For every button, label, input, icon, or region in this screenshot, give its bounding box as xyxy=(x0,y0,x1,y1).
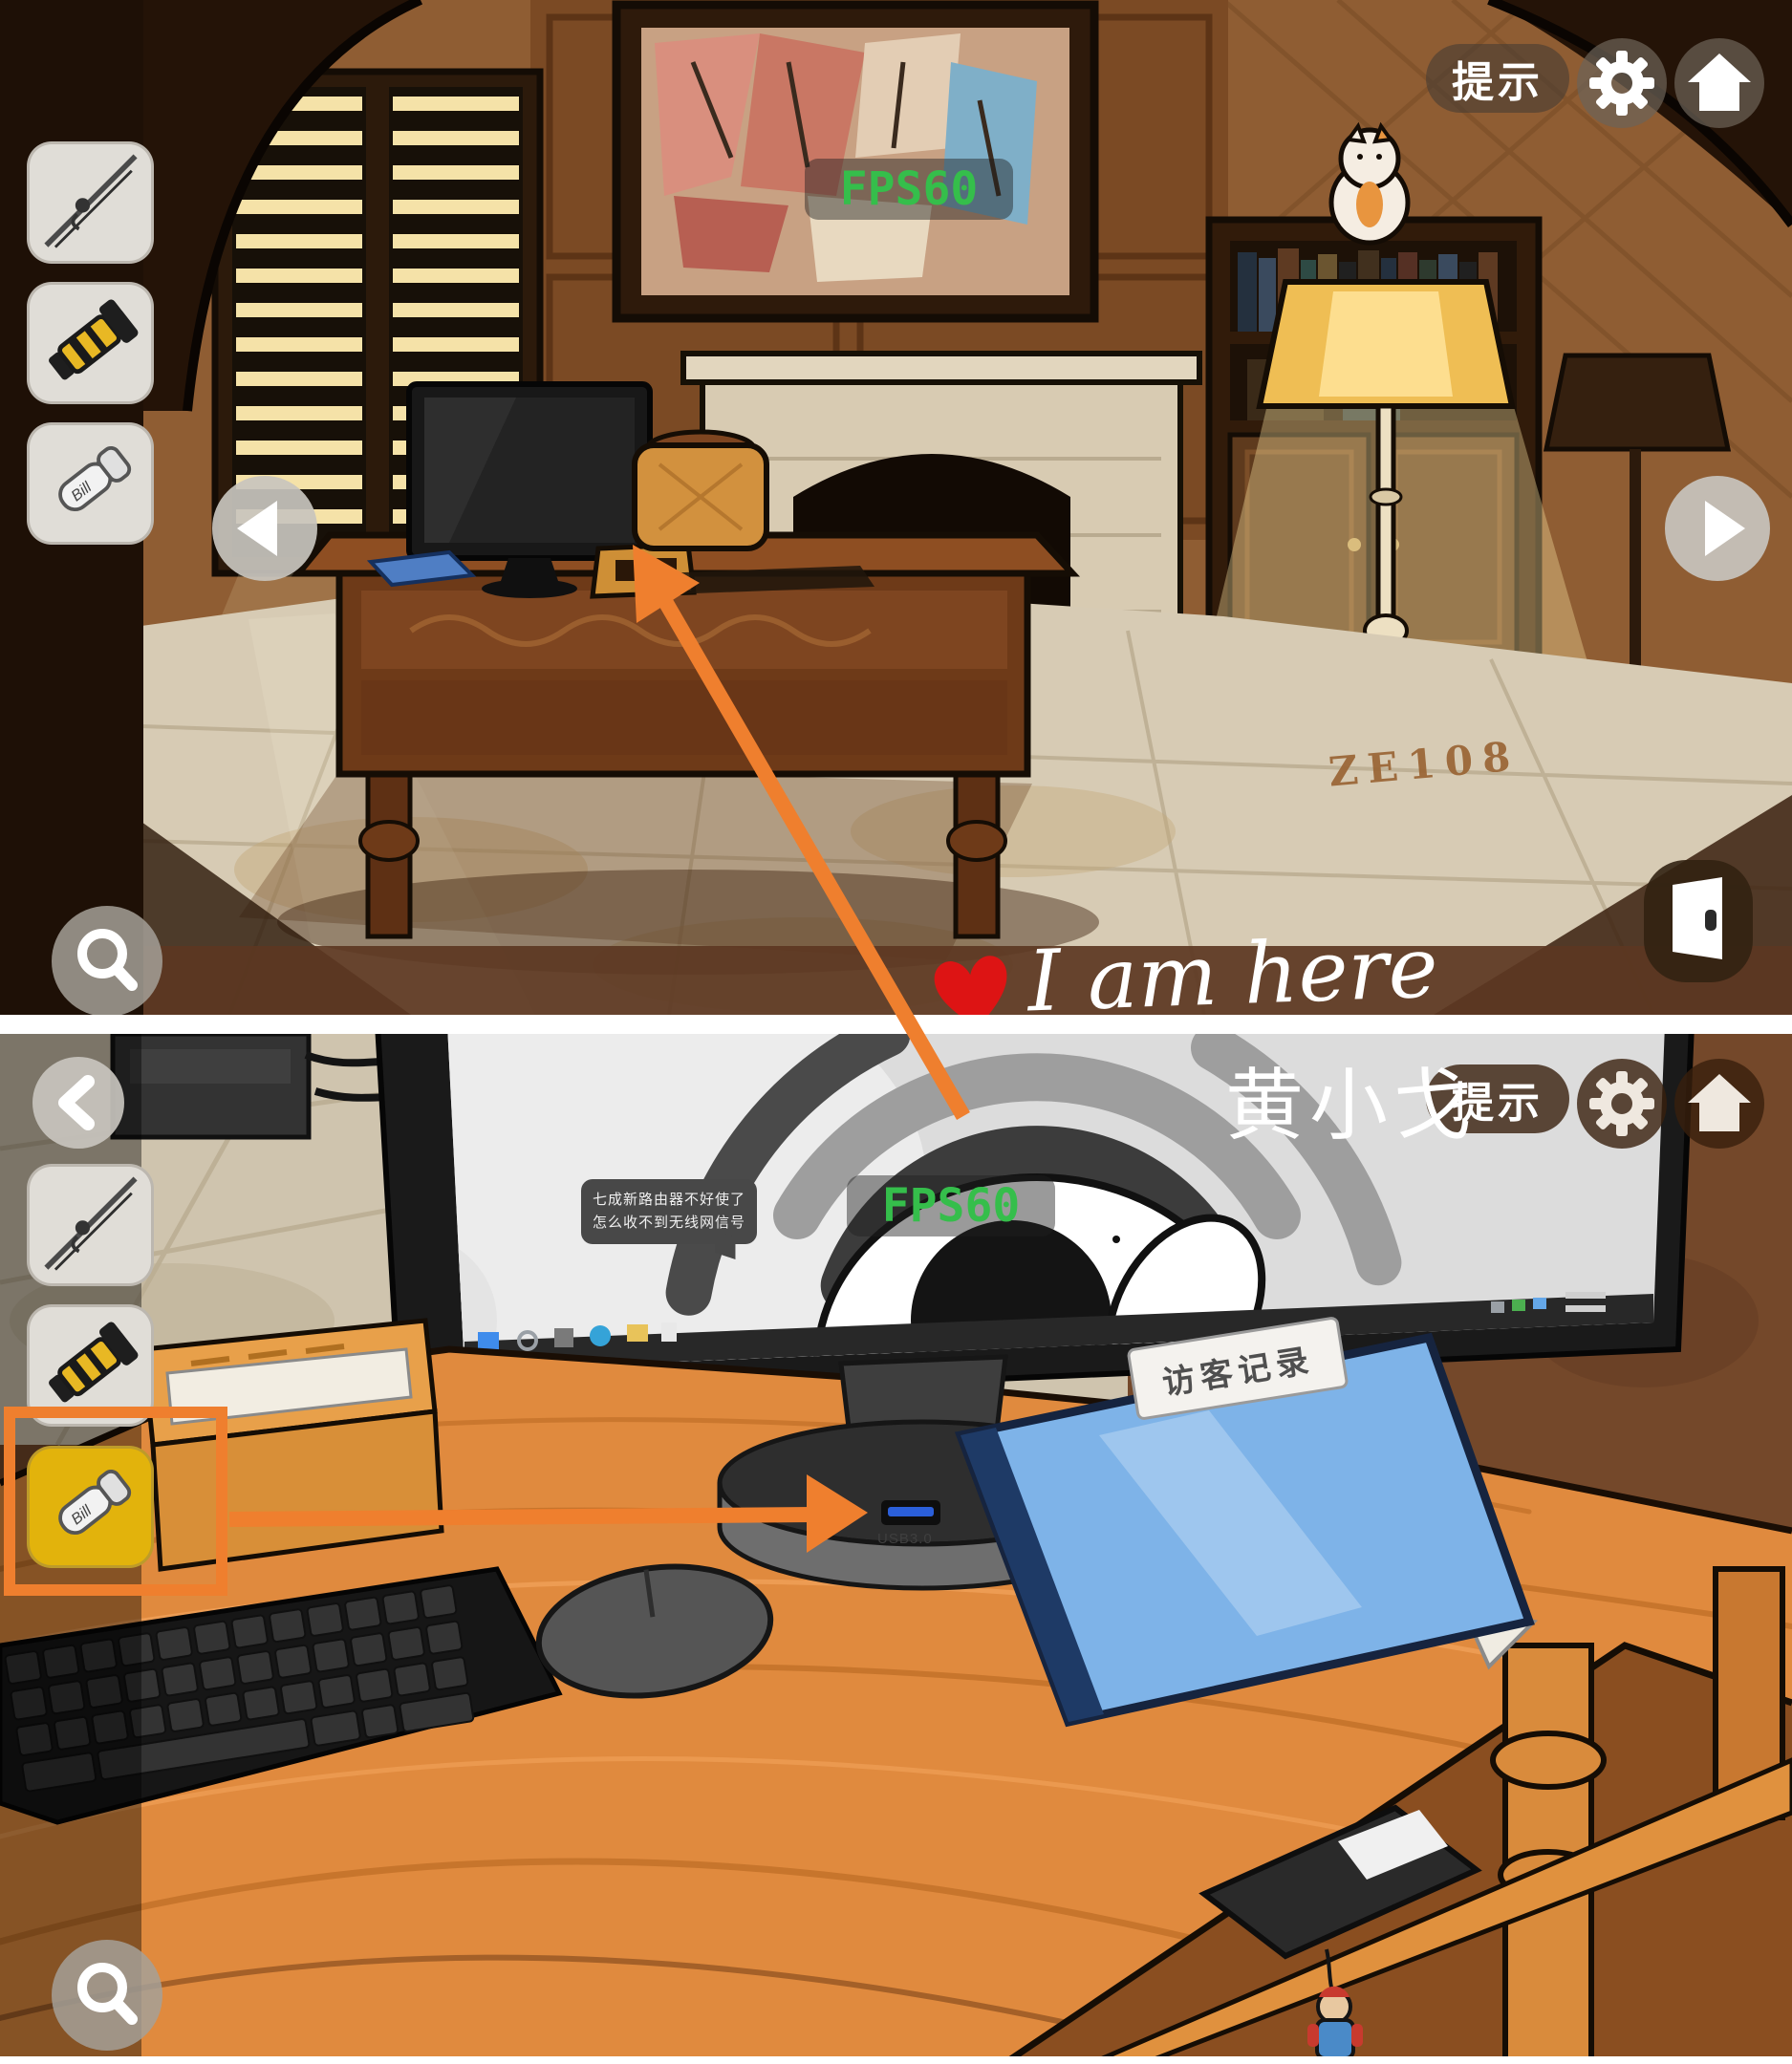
hint-button-label: 提示 xyxy=(1452,48,1544,109)
magnifier-icon xyxy=(52,1940,162,2051)
flashlight-icon xyxy=(33,1310,148,1421)
home-button[interactable] xyxy=(1674,1059,1764,1149)
clock-line-2 xyxy=(1565,1305,1606,1312)
desk-chair[interactable] xyxy=(635,432,766,548)
usb-port-label: USB3.0 xyxy=(877,1531,933,1547)
inventory-slot-flashlight[interactable] xyxy=(27,282,154,404)
nav-arrow-left-icon xyxy=(212,476,317,581)
search-scene-button[interactable] xyxy=(52,1940,162,2051)
fps-value: FPS60 xyxy=(882,1179,1021,1233)
search-scene-button[interactable] xyxy=(52,906,162,1015)
gear-icon xyxy=(1577,1059,1667,1149)
flashlight-icon xyxy=(33,288,148,398)
exit-door-button[interactable] xyxy=(1644,860,1753,982)
speech-bubble: 七成新路由器不好使了 怎么收不到无线网信号 xyxy=(581,1179,757,1244)
fishing-rod-icon xyxy=(33,1170,148,1280)
heart-icon xyxy=(929,948,1017,1015)
inventory-slot-usb-drive-selected[interactable]: Bill xyxy=(27,1446,154,1568)
game-screenshot-collage: 提示 xyxy=(0,0,1792,2064)
panel-divider xyxy=(0,1015,1792,1034)
inventory-slot-flashlight[interactable] xyxy=(27,1304,154,1427)
home-icon xyxy=(1674,38,1764,128)
taskview-icon xyxy=(554,1328,573,1347)
nav-right-button[interactable] xyxy=(1665,476,1770,581)
bottom-screenshot-desk-scene: 七成新路由器不好使了 怎么收不到无线网信号 FPS60 USB3.0 访客记录 … xyxy=(0,1034,1792,2064)
door-exit-icon xyxy=(1644,860,1753,982)
fishing-rod-icon xyxy=(33,147,148,258)
tray-icon-1 xyxy=(1491,1301,1504,1313)
usb-drive-icon: Bill xyxy=(33,1451,148,1562)
inventory-slot-fishing-rod[interactable] xyxy=(27,141,154,264)
nav-left-button[interactable] xyxy=(212,476,317,581)
usb-port[interactable] xyxy=(881,1500,940,1525)
home-icon xyxy=(1674,1059,1764,1149)
settings-button[interactable] xyxy=(1577,1059,1667,1149)
gear-icon xyxy=(1577,38,1667,128)
home-button[interactable] xyxy=(1674,38,1764,128)
speech-line-1: 七成新路由器不好使了 xyxy=(593,1189,745,1212)
settings-button[interactable] xyxy=(1577,38,1667,128)
here-annotation-text: I am here xyxy=(1026,918,1439,1015)
edge-icon xyxy=(590,1325,611,1346)
hint-button[interactable]: 提示 xyxy=(1426,44,1569,113)
explorer-icon xyxy=(627,1324,648,1342)
magnifier-icon xyxy=(52,906,162,1015)
inventory-slot-fishing-rod[interactable] xyxy=(27,1164,154,1286)
back-button[interactable] xyxy=(32,1057,124,1149)
fps-value: FPS60 xyxy=(840,162,979,216)
fps-overlay-top: FPS60 xyxy=(805,159,1013,220)
fps-overlay-bottom: FPS60 xyxy=(847,1175,1055,1236)
letter-holder[interactable] xyxy=(143,1321,442,1569)
bottom-edge-strip xyxy=(0,2056,1792,2064)
tray-icon-3 xyxy=(1533,1298,1546,1309)
back-chevron-icon xyxy=(32,1057,124,1149)
tray-icon-2 xyxy=(1512,1300,1525,1311)
cat-figurine[interactable] xyxy=(1331,126,1408,243)
nav-arrow-right-icon xyxy=(1665,476,1770,581)
speech-line-2: 怎么收不到无线网信号 xyxy=(593,1212,745,1235)
inventory-slot-usb-drive[interactable]: Bill xyxy=(27,422,154,545)
document-icon xyxy=(661,1322,677,1342)
clock-line-1 xyxy=(1565,1292,1606,1299)
watermark-text: 黄小戈 xyxy=(1225,1042,1478,1155)
top-screenshot-room-scene: 提示 xyxy=(0,0,1792,1015)
usb-drive-icon: Bill xyxy=(33,428,148,539)
